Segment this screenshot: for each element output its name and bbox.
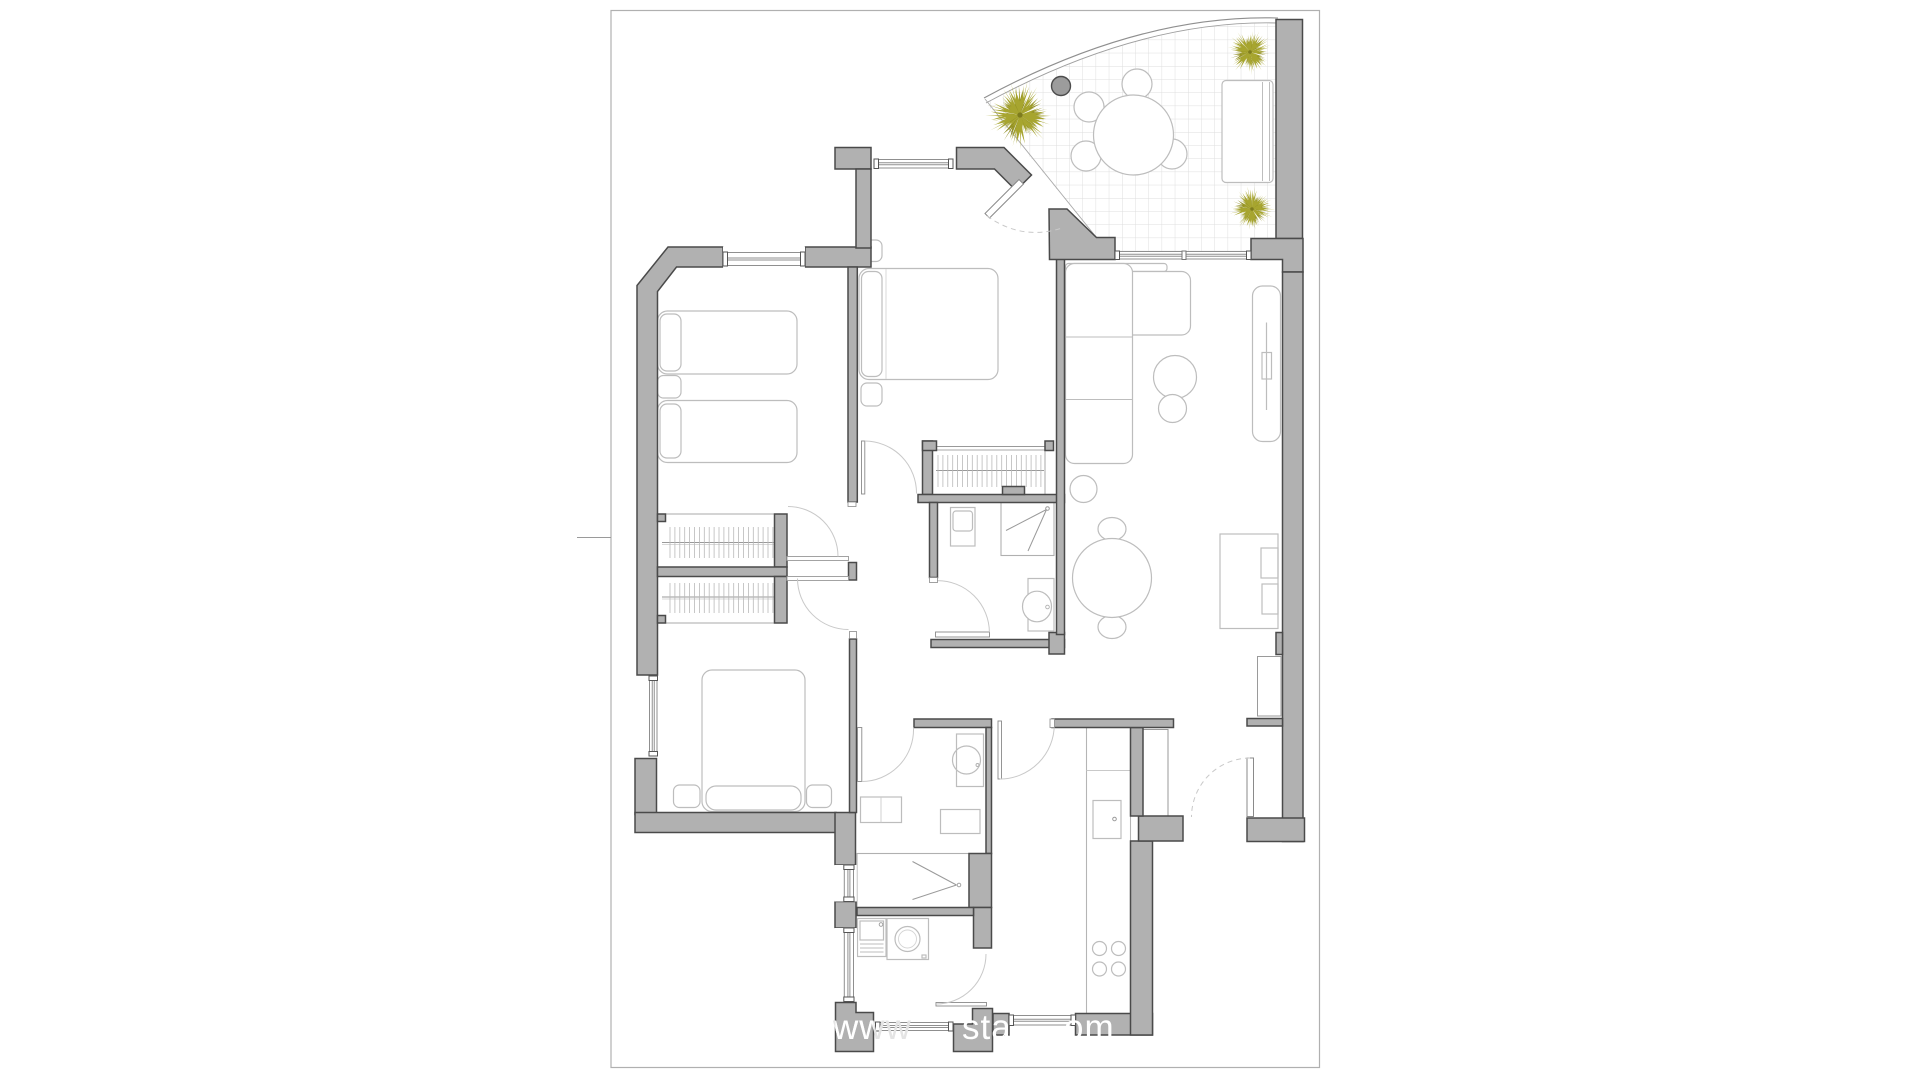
svg-text:om: om bbox=[1064, 1008, 1115, 1047]
svg-text:sta: sta bbox=[962, 1008, 1012, 1047]
